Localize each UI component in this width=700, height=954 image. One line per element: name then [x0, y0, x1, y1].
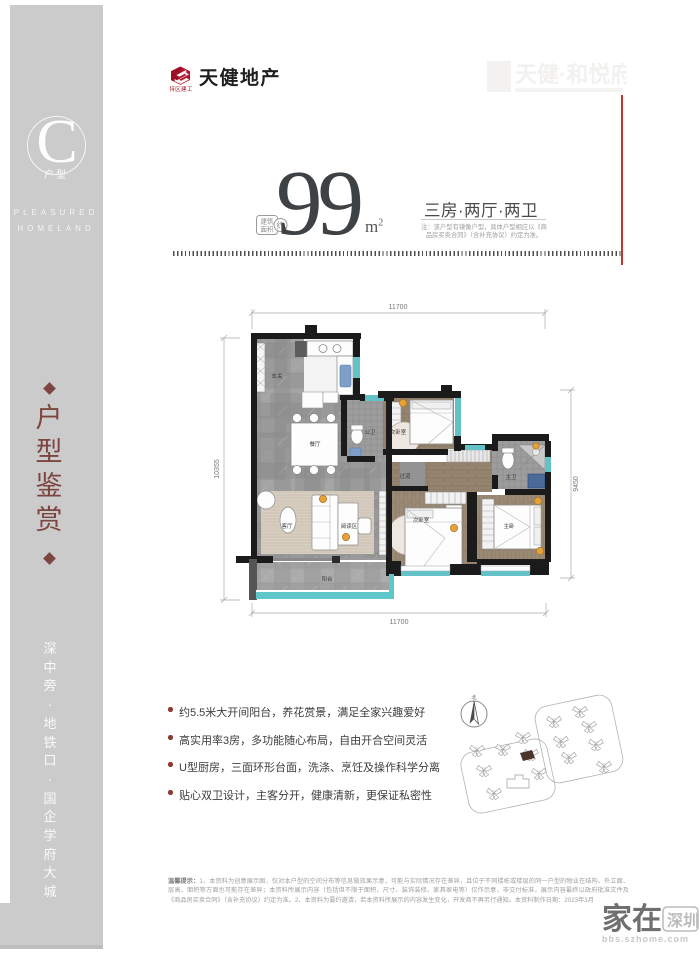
svg-text:面积: 面积: [261, 225, 275, 234]
svg-text:阳台: 阳台: [321, 575, 333, 583]
svg-text:9450: 9450: [573, 476, 580, 492]
svg-text:特区建工: 特区建工: [170, 85, 193, 93]
svg-text:11700: 11700: [390, 619, 409, 626]
svg-text:过道: 过道: [399, 472, 411, 480]
svg-text:天健·和悦府: 天健·和悦府: [515, 62, 627, 87]
svg-text:客厅: 客厅: [281, 522, 293, 530]
svg-text:公卫: 公卫: [364, 429, 376, 436]
svg-text:阅读区: 阅读区: [341, 522, 358, 530]
svg-text:次卧室: 次卧室: [413, 516, 430, 524]
svg-text:主卧: 主卧: [503, 522, 515, 530]
svg-text:建筑: 建筑: [261, 217, 275, 226]
svg-text:家在: 家在: [602, 903, 662, 936]
svg-text:主卫: 主卫: [505, 473, 517, 481]
svg-text:11700: 11700: [389, 304, 408, 311]
svg-text:北: 北: [471, 694, 476, 701]
svg-text:10355: 10355: [214, 459, 221, 479]
svg-text:bbs.szhome.com: bbs.szhome.com: [602, 934, 689, 944]
svg-text:深圳: 深圳: [667, 911, 699, 930]
svg-text:餐厅: 餐厅: [309, 440, 321, 448]
svg-text:玄关: 玄关: [271, 372, 283, 380]
svg-text:次卧室: 次卧室: [390, 428, 407, 436]
